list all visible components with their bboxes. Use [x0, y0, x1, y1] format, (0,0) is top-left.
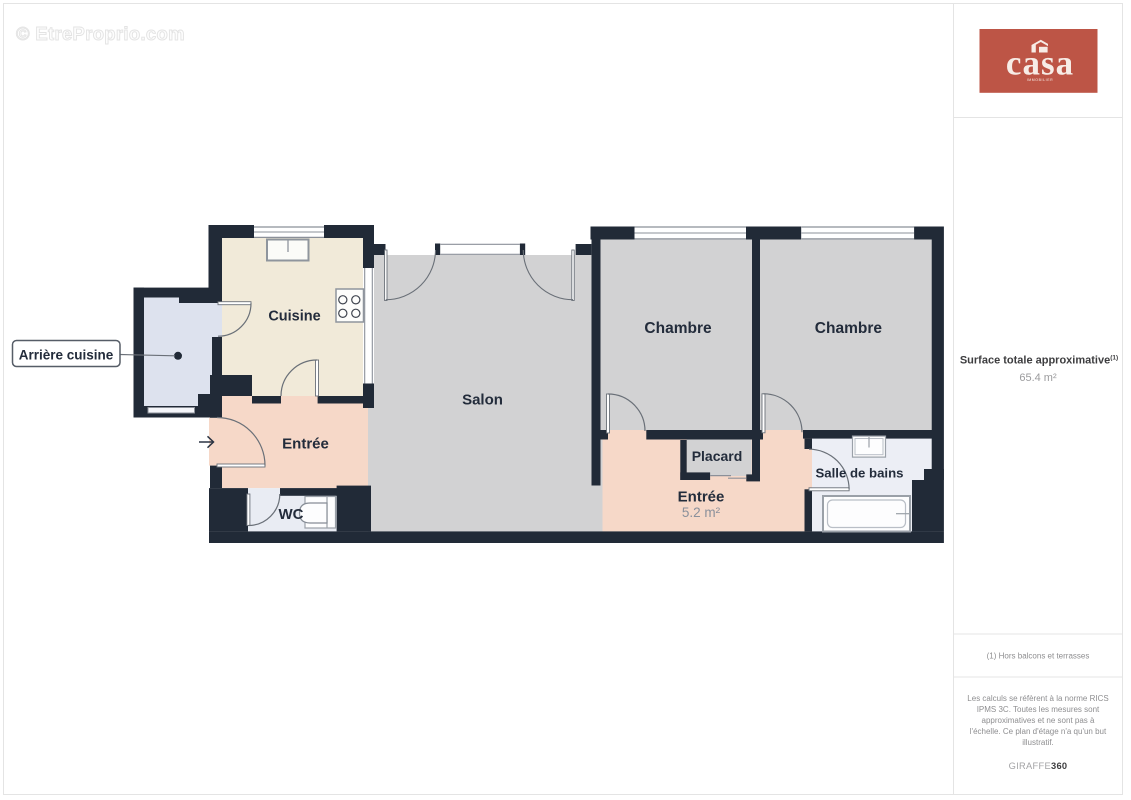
svg-text:illustratif.: illustratif. — [1022, 738, 1054, 747]
svg-text:65.4 m²: 65.4 m² — [1019, 372, 1057, 384]
svg-text:WC: WC — [279, 506, 304, 523]
svg-text:l'échelle. Ce plan d'étage n'a: l'échelle. Ce plan d'étage n'a qu'un but — [970, 727, 1107, 736]
svg-text:© EtreProprio.com: © EtreProprio.com — [16, 23, 185, 44]
svg-text:Les calculs se réfèrent à la n: Les calculs se réfèrent à la norme RICS — [967, 694, 1108, 703]
svg-text:approximatives et ne sont pas: approximatives et ne sont pas à — [982, 716, 1096, 725]
svg-text:Placard: Placard — [692, 448, 743, 464]
svg-text:5.2 m²: 5.2 m² — [682, 505, 721, 520]
svg-text:IMMOBILIER: IMMOBILIER — [1027, 78, 1054, 82]
svg-text:Salle de bains: Salle de bains — [816, 466, 904, 481]
svg-text:Arrière cuisine: Arrière cuisine — [19, 348, 114, 363]
svg-text:Chambre: Chambre — [815, 320, 883, 337]
svg-text:Salon: Salon — [462, 392, 503, 409]
svg-text:Entrée: Entrée — [282, 436, 329, 453]
svg-text:GIRAFFE360: GIRAFFE360 — [1009, 761, 1068, 771]
svg-text:Surface totale approximative(1: Surface totale approximative(1) — [960, 355, 1118, 367]
svg-text:Entrée: Entrée — [678, 489, 725, 506]
svg-text:casa: casa — [1006, 44, 1074, 83]
svg-text:Cuisine: Cuisine — [268, 309, 320, 325]
svg-text:Chambre: Chambre — [644, 320, 712, 337]
svg-text:(1) Hors balcons et terrasses: (1) Hors balcons et terrasses — [987, 652, 1090, 661]
svg-text:IPMS 3C. Toutes les mesures so: IPMS 3C. Toutes les mesures sont — [977, 705, 1100, 714]
